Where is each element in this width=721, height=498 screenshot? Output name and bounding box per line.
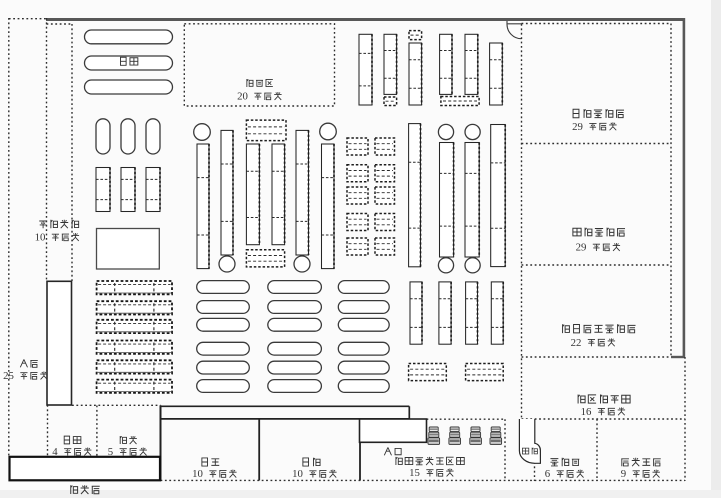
svg-text:6: 6 xyxy=(545,468,551,480)
svg-text:5: 5 xyxy=(108,446,113,458)
svg-text:10: 10 xyxy=(35,232,46,244)
svg-text:25: 25 xyxy=(3,370,14,382)
svg-text:15: 15 xyxy=(409,467,420,479)
svg-text:29: 29 xyxy=(576,242,587,254)
svg-text:4: 4 xyxy=(52,446,58,458)
svg-text:10: 10 xyxy=(192,468,203,480)
svg-text:22: 22 xyxy=(571,337,582,349)
svg-text:20: 20 xyxy=(237,91,248,103)
svg-text:29: 29 xyxy=(572,121,583,133)
svg-text:10: 10 xyxy=(292,468,303,480)
svg-text:9: 9 xyxy=(621,468,626,480)
svg-text:16: 16 xyxy=(581,406,592,418)
